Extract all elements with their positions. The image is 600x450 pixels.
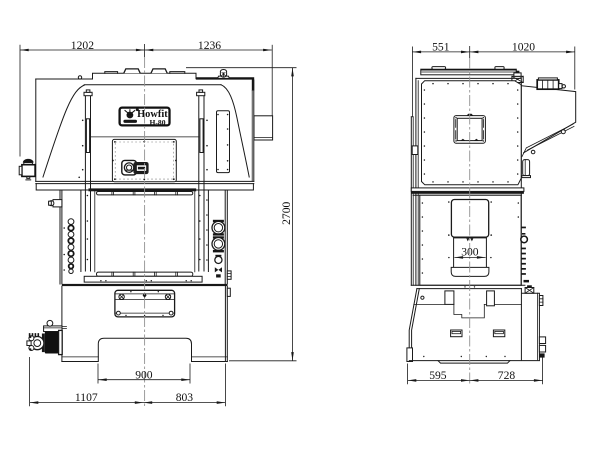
svg-text:H-80: H-80	[149, 118, 165, 127]
svg-text:803: 803	[176, 391, 194, 404]
svg-text:595: 595	[429, 369, 447, 382]
svg-text:1236: 1236	[198, 39, 221, 52]
svg-text:2700: 2700	[280, 202, 293, 225]
svg-text:1202: 1202	[71, 39, 94, 52]
svg-text:900: 900	[135, 368, 153, 381]
svg-text:551: 551	[432, 41, 450, 54]
svg-text:300: 300	[461, 245, 479, 258]
svg-text:728: 728	[498, 369, 516, 382]
svg-text:1020: 1020	[512, 41, 535, 54]
svg-text:1107: 1107	[75, 391, 98, 404]
